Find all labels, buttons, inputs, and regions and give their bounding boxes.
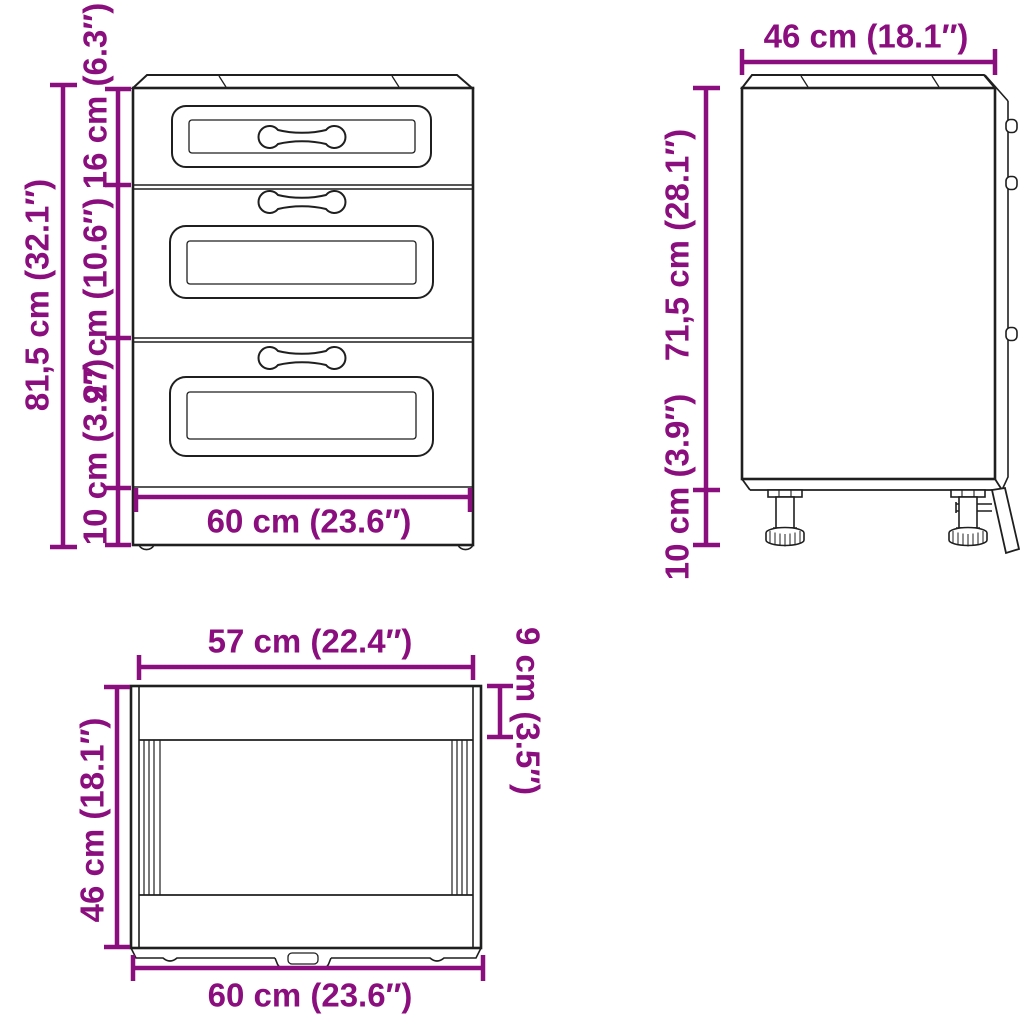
side-height-dim-line — [693, 88, 720, 545]
front-top-drawer-label: 16 cm (6.3″) — [79, 3, 112, 189]
top-depth-label: 46 cm (18.1″) — [76, 718, 109, 923]
cabinet-dimension-diagram: 81,5 cm (32.1″) 16 cm (6.3″) 27 cm (10.6… — [0, 0, 1024, 1024]
line-art — [0, 0, 1024, 1024]
drawer-handle — [259, 191, 346, 213]
top-back-depth-label: 9 cm (3.5″) — [512, 627, 545, 795]
side-plinth-board — [992, 488, 1019, 553]
top-left-rails — [144, 740, 160, 895]
side-leg-front — [766, 490, 804, 547]
side-leg-back — [949, 490, 987, 547]
front-overall-height-label: 81,5 cm (32.1″) — [21, 179, 54, 411]
top-side-panels — [139, 686, 473, 948]
top-inner-width-label: 57 cm (22.4″) — [208, 625, 413, 658]
side-front-edge — [1002, 101, 1008, 490]
top-cabinet-outline — [131, 686, 481, 948]
side-countertop-edge — [742, 75, 995, 88]
side-leg-height-label: 10 cm (3.9″) — [661, 394, 694, 580]
front-drawer-2 — [170, 191, 433, 298]
front-plinth-height-label: 10 cm (3.9″) — [79, 359, 112, 545]
front-width-label: 60 cm (23.6″) — [207, 505, 412, 538]
side-cabinet-outline — [742, 88, 995, 479]
top-width-label: 60 cm (23.6″) — [208, 979, 413, 1012]
top-right-rails — [452, 740, 467, 895]
top-handle-inner — [288, 953, 318, 964]
top-view-drawing — [131, 686, 481, 969]
side-bottom-edge — [742, 479, 1002, 490]
side-handle-profile-2 — [1006, 177, 1017, 190]
front-drawer-separators — [133, 185, 473, 487]
side-depth-label: 46 cm (18.1″) — [764, 20, 969, 53]
side-body-height-label: 71,5 cm (28.1″) — [661, 129, 694, 361]
side-handle-profile-1 — [1006, 120, 1017, 133]
front-drawer-3 — [170, 347, 433, 456]
side-view-drawing — [742, 75, 1019, 553]
front-cabinet-outline — [133, 88, 473, 545]
drawer-handle — [259, 126, 346, 148]
drawer-handle — [259, 347, 346, 369]
front-drawer-1 — [172, 106, 431, 167]
front-view-drawing — [133, 75, 473, 550]
side-handle-profile-3 — [1006, 328, 1017, 341]
front-countertop-edge — [133, 75, 472, 88]
